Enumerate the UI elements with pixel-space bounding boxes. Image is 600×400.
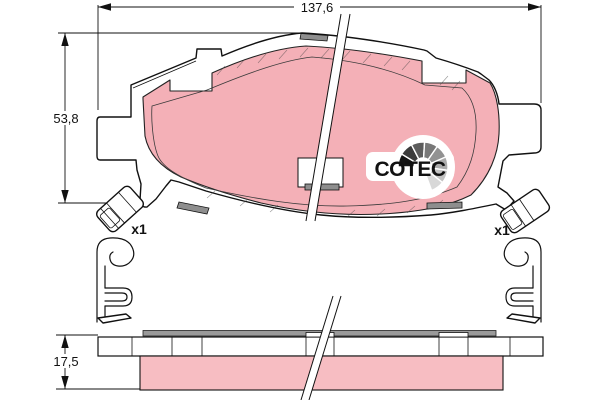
shim-tab-bottom-right bbox=[427, 202, 462, 209]
clip-right-side-view bbox=[504, 238, 541, 323]
width-dimension-label: 137,6 bbox=[301, 0, 334, 15]
section-plate-tab bbox=[439, 333, 468, 338]
technical-drawing-page: COTEC x1 x1 bbox=[0, 0, 600, 400]
section-friction-block bbox=[140, 356, 503, 390]
height-dimension-label: 53,8 bbox=[53, 111, 78, 126]
cotec-logo-text: COTEC bbox=[375, 158, 446, 181]
arrow-right-icon bbox=[528, 3, 541, 11]
shim-tab-bottom-left bbox=[177, 202, 209, 214]
arrow-up-icon bbox=[61, 33, 68, 46]
arrow-down-icon bbox=[61, 376, 68, 389]
arrow-up-icon bbox=[61, 335, 68, 348]
right-clip-qty-label: x1 bbox=[494, 222, 510, 238]
clip-left-side-view bbox=[97, 238, 134, 323]
arrow-left-icon bbox=[98, 3, 111, 11]
left-clip-qty-label: x1 bbox=[131, 221, 147, 237]
brake-pad-drawing-canvas: COTEC x1 x1 bbox=[0, 0, 600, 400]
shim-tab-bottom-center bbox=[305, 184, 339, 190]
thickness-dimension-label: 17,5 bbox=[53, 354, 78, 369]
arrow-down-icon bbox=[61, 190, 68, 203]
